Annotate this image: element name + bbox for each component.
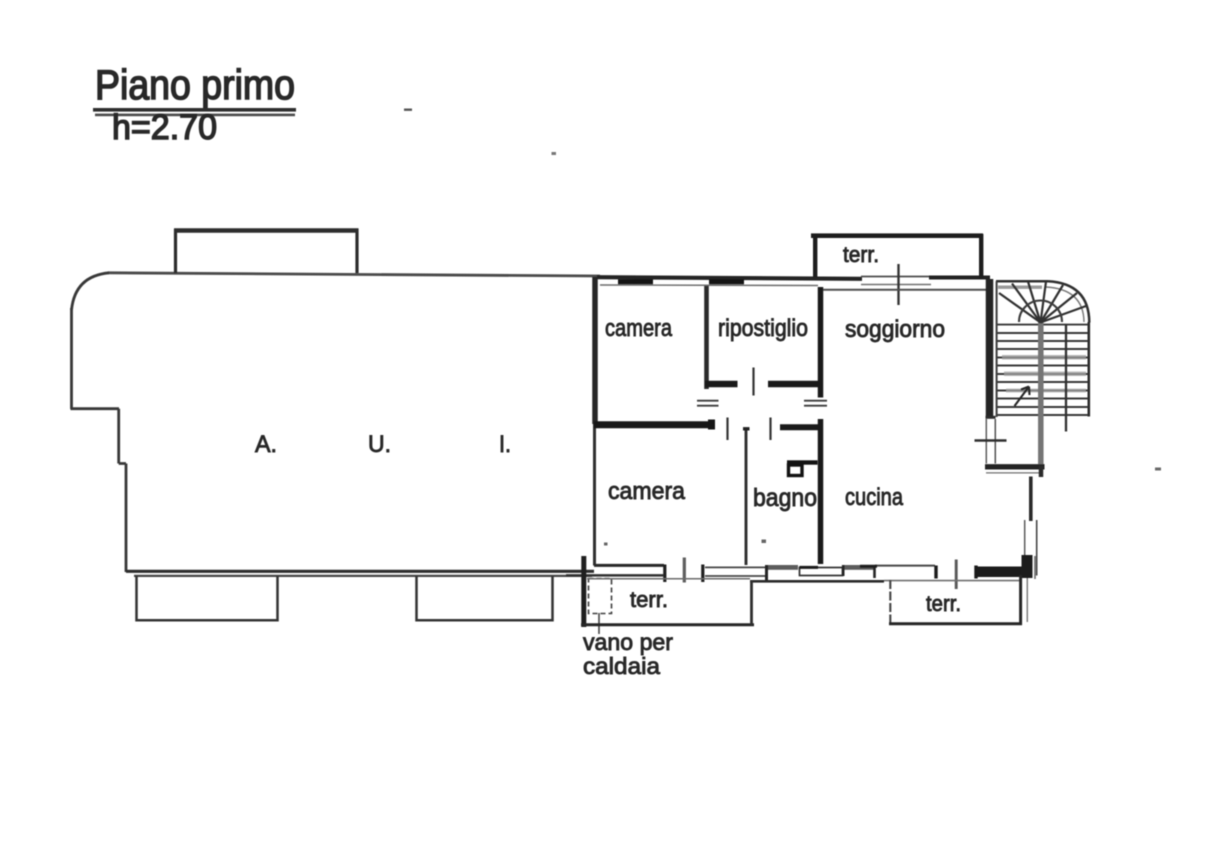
svg-text:vano per: vano per [583, 629, 673, 655]
svg-text:camera: camera [605, 315, 673, 342]
svg-text:Piano primo: Piano primo [95, 61, 295, 108]
svg-text:A.: A. [255, 431, 277, 458]
svg-text:terr.: terr. [843, 242, 879, 267]
svg-text:U.: U. [368, 431, 391, 458]
svg-text:soggiorno: soggiorno [845, 316, 945, 343]
svg-text:bagno: bagno [753, 484, 817, 512]
svg-text:terr.: terr. [926, 591, 961, 616]
svg-text:ripostiglio: ripostiglio [718, 315, 808, 342]
svg-text:terr.: terr. [630, 587, 668, 612]
svg-text:cucina: cucina [845, 484, 904, 511]
svg-text:caldaia: caldaia [583, 653, 660, 679]
svg-text:I.: I. [499, 431, 511, 458]
svg-text:h=2.70: h=2.70 [112, 108, 217, 147]
svg-text:camera: camera [608, 478, 686, 505]
